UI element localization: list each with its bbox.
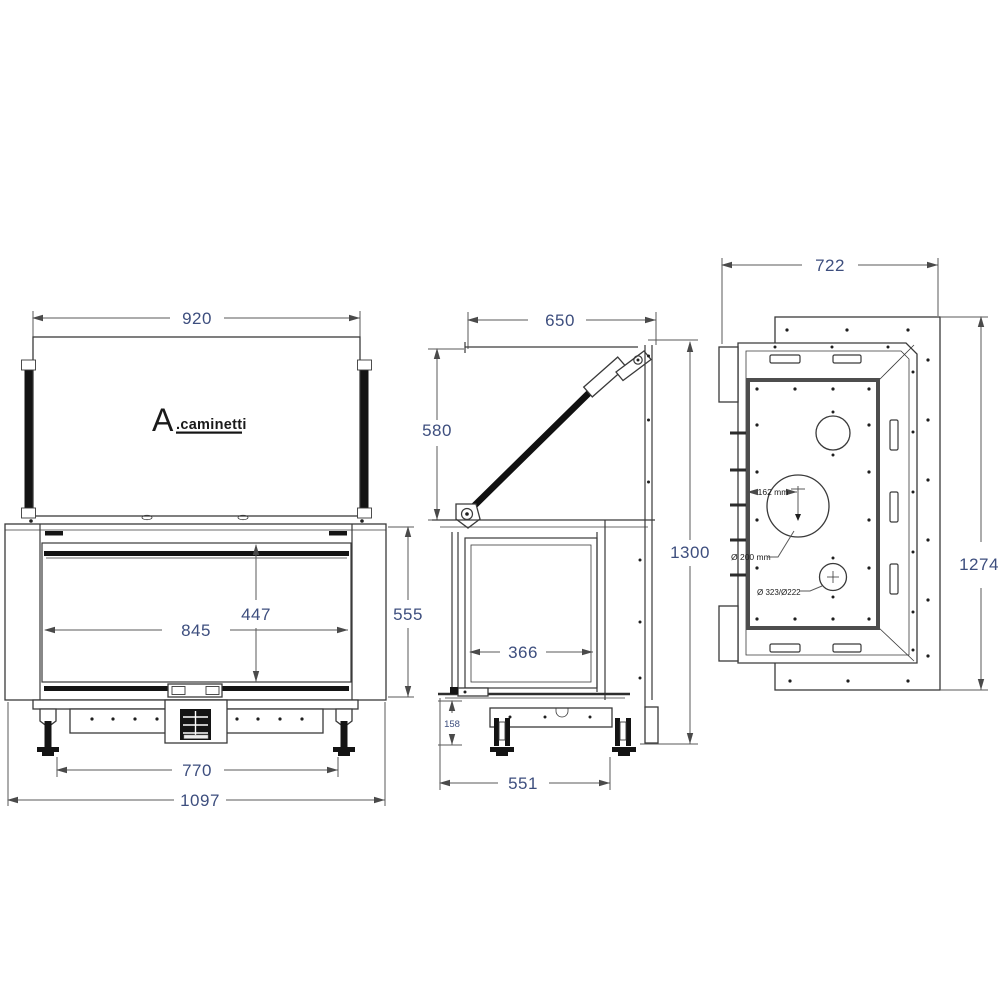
ann-label-flue-diameter: Ø 200 mm (731, 552, 771, 562)
dim-label-1097: 1097 (180, 791, 220, 810)
front-view: 920 A .caminetti (5, 309, 423, 810)
front-body (5, 524, 386, 700)
dim-label-920: 920 (182, 309, 212, 328)
dim-door-open-height: 580 (422, 349, 464, 520)
dim-total-height-open: 1300 (640, 340, 710, 744)
dim-label-366: 366 (508, 643, 538, 662)
technical-drawing-canvas: 920 A .caminetti (0, 0, 1000, 1000)
dim-label-650: 650 (545, 311, 575, 330)
dim-label-770: 770 (182, 761, 212, 780)
ann-label-air-intake: Ø 323/Ø222 (757, 588, 801, 597)
dim-label-845: 845 (181, 621, 211, 640)
dim-plinth-height: 158 (438, 701, 462, 745)
dim-label-722: 722 (815, 256, 845, 275)
rear-bottom-bracket (645, 707, 658, 743)
dim-label-158: 158 (444, 719, 460, 730)
leg-left (37, 709, 59, 756)
front-hinge-plate (458, 688, 488, 696)
dim-overall-height: 1274 (940, 317, 999, 690)
brand-logo-initial: A (152, 402, 174, 438)
gas-strut (472, 357, 626, 508)
dim-label-447: 447 (241, 605, 271, 624)
flue-outlet (767, 475, 829, 537)
fireplace-technical-drawing: 920 A .caminetti (0, 0, 1000, 1000)
side-leg-rear (612, 718, 636, 756)
leg-right (333, 709, 355, 756)
dim-label-555: 555 (393, 605, 423, 624)
control-box (165, 700, 227, 743)
brand-logo-text: .caminetti (176, 417, 247, 433)
brand-logo-underline (176, 432, 242, 434)
dim-label-1300: 1300 (670, 543, 710, 562)
dim-glass-depth: 366 (470, 643, 593, 662)
door-handle (168, 684, 222, 697)
dim-front-height: 555 (388, 527, 423, 697)
rear-view: 722 (719, 256, 999, 690)
side-base (438, 687, 636, 756)
dim-label-580: 580 (422, 421, 452, 440)
bracket-top (719, 347, 738, 402)
dim-glass-width: 920 (33, 309, 360, 340)
dim-label-1274: 1274 (959, 555, 999, 574)
side-body (432, 345, 658, 743)
strut-hinge-bottom (456, 504, 480, 528)
ann-label-162mm: 162 mm (758, 487, 789, 497)
dim-feet-spacing: 770 (57, 757, 338, 780)
front-base (33, 700, 358, 756)
side-view: 650 580 (422, 311, 710, 793)
dim-top-depth: 650 (468, 311, 656, 349)
bracket-bottom (719, 606, 738, 661)
dim-label-551: 551 (508, 774, 538, 793)
open-door (465, 342, 638, 353)
